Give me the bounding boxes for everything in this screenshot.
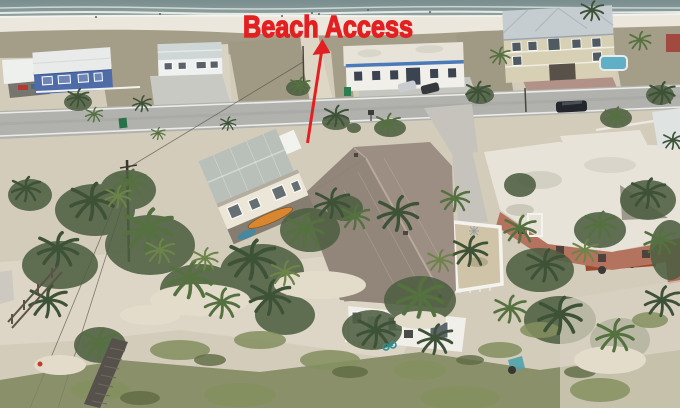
blue-beach-cottage (32, 47, 113, 94)
green-trash-bin (118, 118, 127, 129)
green-bin (344, 87, 351, 96)
aerial-photo-canvas: Beach Access (0, 0, 680, 408)
gray-rail (0, 270, 14, 304)
aerial-photo-listing-image: Beach Access (0, 0, 680, 408)
ac-unit (404, 330, 413, 338)
roof-vent (354, 153, 358, 157)
swimming-pool (600, 56, 627, 70)
red-marker (38, 362, 43, 367)
white-beach-house (157, 42, 222, 76)
red-shed (666, 34, 680, 52)
fire-pit (508, 366, 516, 374)
annotation-text: Beach Access (243, 9, 413, 44)
suv-roof-glass (562, 102, 582, 104)
